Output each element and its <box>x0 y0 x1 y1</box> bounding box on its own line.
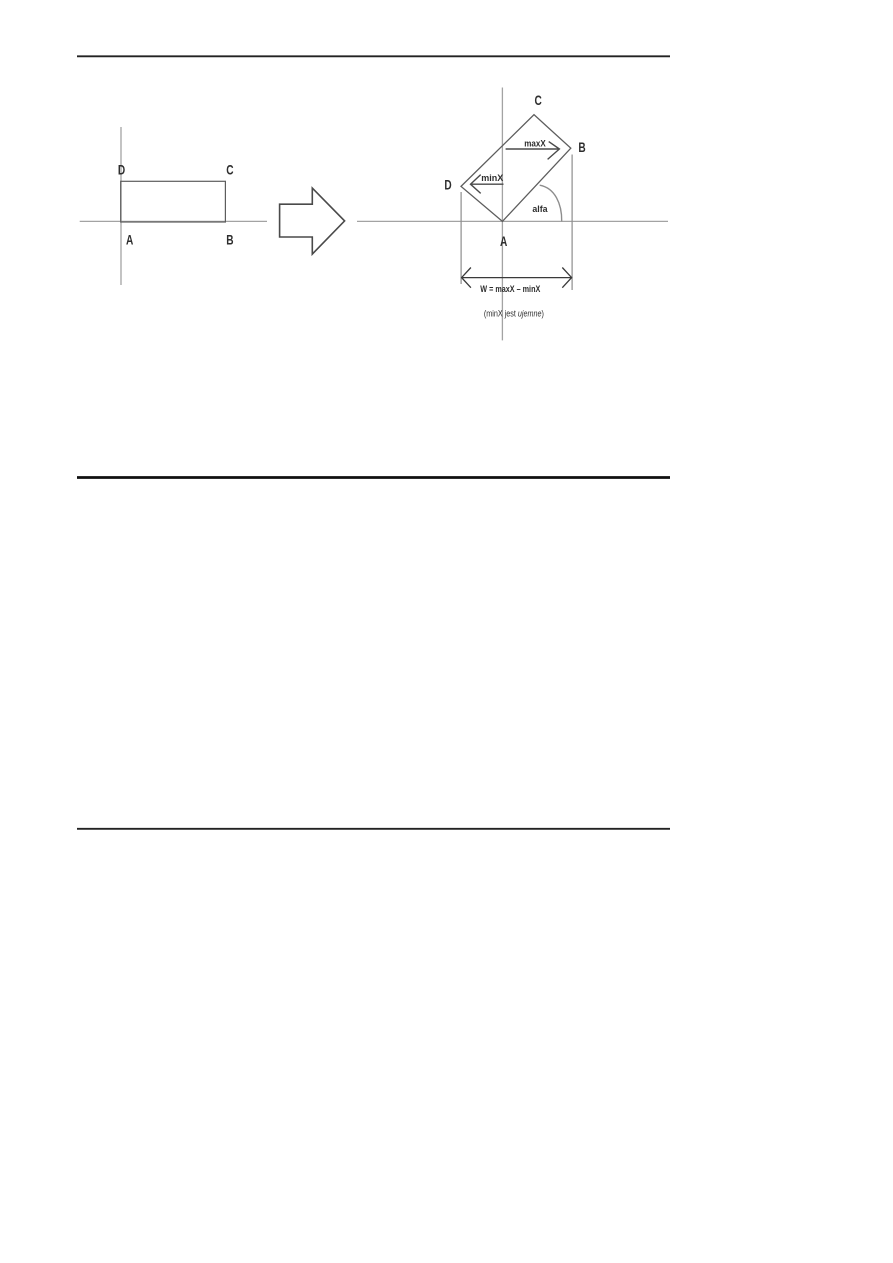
svg-text:C: C <box>226 163 233 178</box>
svg-text:B: B <box>226 232 233 247</box>
svg-text:alfa: alfa <box>532 204 548 215</box>
svg-text:A: A <box>126 232 133 247</box>
svg-text:D: D <box>118 163 125 178</box>
svg-text:D: D <box>444 178 451 193</box>
svg-text:minX: minX <box>481 173 504 184</box>
svg-text:maxX: maxX <box>524 138 546 149</box>
svg-text:A: A <box>500 234 507 249</box>
svg-text:W = maxX – minX: W = maxX – minX <box>480 284 540 294</box>
svg-text:B: B <box>578 140 585 155</box>
svg-text:(minX jest ujemne): (minX jest ujemne) <box>484 309 544 319</box>
svg-text:C: C <box>534 93 541 108</box>
